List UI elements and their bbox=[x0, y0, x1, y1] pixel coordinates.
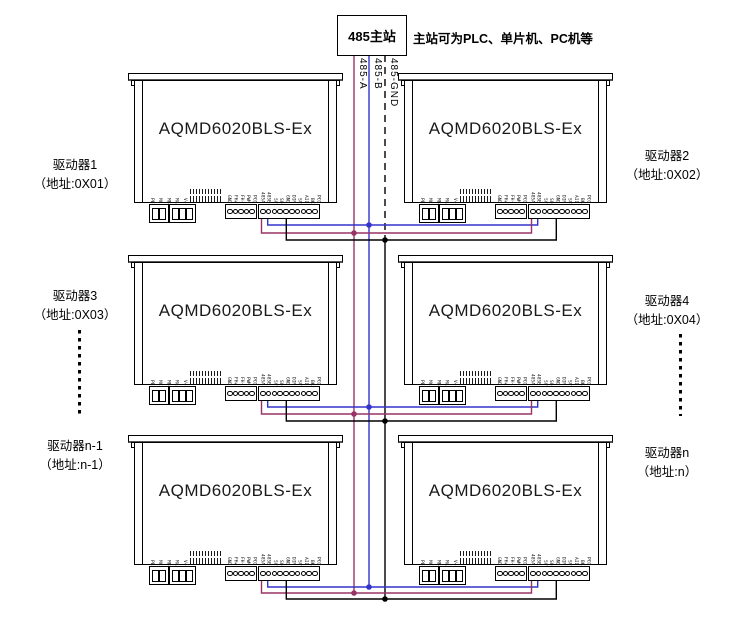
signal-terminal bbox=[272, 391, 278, 397]
signal-terminal bbox=[289, 209, 295, 215]
signal-terminal bbox=[312, 209, 318, 215]
pin-label: SV bbox=[297, 380, 302, 385]
signal-terminal bbox=[283, 391, 289, 397]
pin-label: GND bbox=[496, 377, 501, 385]
pin-label: MC bbox=[157, 198, 162, 203]
power-terminal bbox=[152, 390, 159, 402]
pin-label: MC bbox=[157, 560, 162, 565]
power-terminal bbox=[159, 208, 166, 220]
junction-dot bbox=[382, 237, 388, 243]
pin-label: PWM bbox=[245, 377, 250, 385]
pin-label: PCO bbox=[315, 557, 320, 565]
junction-dot bbox=[366, 584, 372, 590]
pin-label: 485B bbox=[536, 192, 541, 203]
driver-name: 驱动器n-1 bbox=[10, 437, 140, 456]
driver-address: （地址:0X04） bbox=[602, 311, 732, 330]
signal-terminal bbox=[227, 571, 233, 577]
pin-label: BK bbox=[309, 380, 314, 385]
driver-address: （地址:n） bbox=[602, 463, 732, 482]
power-terminal bbox=[179, 390, 186, 402]
driver-label: 驱动器2（地址:0X02） bbox=[602, 147, 732, 185]
power-terminal bbox=[456, 208, 463, 220]
pin-label: BK bbox=[579, 560, 584, 565]
pin-label: GND bbox=[496, 557, 501, 565]
pin-label: FH- bbox=[509, 377, 514, 385]
terminal-block-signal-5 bbox=[495, 386, 527, 401]
pin-label: V+ bbox=[182, 560, 187, 565]
pin-label: FH+ bbox=[232, 557, 237, 565]
pin-label: AI1 bbox=[573, 195, 578, 203]
master-note: 主站可为PLC、单片机、PC机等 bbox=[413, 28, 593, 47]
pin-label: MB bbox=[165, 198, 170, 203]
pin-label: PCO bbox=[315, 195, 320, 203]
pin-label: PE bbox=[419, 380, 424, 385]
terminal-block-power-b bbox=[169, 566, 196, 585]
signal-terminal bbox=[238, 571, 244, 577]
terminal-block-power-b bbox=[439, 204, 466, 223]
signal-terminal bbox=[547, 391, 553, 397]
pin-label: FH+ bbox=[502, 377, 507, 385]
pin-label: AI1 bbox=[573, 377, 578, 385]
signal-terminal bbox=[576, 571, 582, 577]
terminal-block-power-b bbox=[439, 386, 466, 405]
signal-terminal bbox=[260, 571, 266, 577]
pin-label: PWM bbox=[245, 195, 250, 203]
ellipsis-marker-left bbox=[78, 330, 81, 415]
power-terminal bbox=[442, 390, 449, 402]
bus-label-485-b: 485-B bbox=[372, 58, 383, 90]
signal-terminal bbox=[553, 571, 559, 577]
signal-terminal bbox=[312, 571, 318, 577]
pin-label: V+ bbox=[452, 560, 457, 565]
driver-unit: AQMD6020BLS-ExPEMCMBMAV+GNDFH+FH-PWMPCO4… bbox=[398, 435, 615, 586]
terminal-block-signal-10 bbox=[528, 566, 590, 581]
pin-label: DIR bbox=[561, 557, 566, 565]
driver-side-rail-right bbox=[328, 80, 337, 203]
signal-terminal bbox=[519, 571, 525, 577]
wiring-diagram: 485主站 主站可为PLC、单片机、PC机等 485-A 485-B 485-G… bbox=[0, 0, 750, 617]
signal-terminal bbox=[277, 209, 283, 215]
signal-terminal bbox=[508, 391, 514, 397]
signal-terminal bbox=[553, 391, 559, 397]
pin-label: 485A bbox=[260, 374, 265, 385]
driver-name: 驱动器2 bbox=[602, 147, 732, 166]
pin-label: PE bbox=[419, 198, 424, 203]
pin-label: SV bbox=[567, 380, 572, 385]
junction-dot bbox=[366, 222, 372, 228]
pin-label: 485A bbox=[530, 192, 535, 203]
signal-terminal bbox=[301, 571, 307, 577]
driver-side-rail-right bbox=[328, 442, 337, 565]
power-terminal bbox=[179, 208, 186, 220]
model-label: AQMD6020BLS-Ex bbox=[142, 301, 329, 321]
driver-name: 驱动器n bbox=[602, 444, 732, 463]
pin-label: FH- bbox=[509, 195, 514, 203]
model-label: AQMD6020BLS-Ex bbox=[412, 119, 599, 139]
power-terminal bbox=[442, 570, 449, 582]
pin-label: V+ bbox=[182, 198, 187, 203]
spec-text-block bbox=[190, 551, 223, 564]
signal-terminal bbox=[559, 571, 565, 577]
pin-label: 485B bbox=[266, 192, 271, 203]
pin-label: V+ bbox=[452, 380, 457, 385]
pin-label: SQ bbox=[548, 198, 553, 203]
pin-label: FH+ bbox=[232, 377, 237, 385]
terminal-block-power-a bbox=[149, 204, 169, 223]
signal-terminal bbox=[227, 391, 233, 397]
pin-label: PCO bbox=[585, 195, 590, 203]
signal-terminal bbox=[249, 209, 255, 215]
driver-label: 驱动器n-1（地址:n-1） bbox=[10, 437, 140, 475]
pin-label: AI1 bbox=[303, 377, 308, 385]
driver-address: （地址:0X01） bbox=[10, 175, 140, 194]
signal-terminal bbox=[295, 391, 301, 397]
power-terminal bbox=[422, 570, 429, 582]
driver-unit: AQMD6020BLS-ExPEMCMBMAV+GNDFH+FH-PWMPCO4… bbox=[128, 255, 345, 406]
signal-terminal bbox=[559, 391, 565, 397]
spec-text-block bbox=[460, 551, 493, 564]
pin-label: DIR bbox=[561, 195, 566, 203]
power-terminal bbox=[172, 570, 179, 582]
signal-terminal bbox=[542, 209, 548, 215]
signal-terminal bbox=[582, 391, 588, 397]
signal-terminal bbox=[295, 571, 301, 577]
pin-label: FH- bbox=[239, 377, 244, 385]
model-label: AQMD6020BLS-Ex bbox=[142, 481, 329, 501]
pin-label: 5V bbox=[542, 198, 547, 203]
pin-label: MC bbox=[157, 380, 162, 385]
power-terminal bbox=[152, 208, 159, 220]
terminal-block-signal-10 bbox=[258, 204, 320, 219]
signal-terminal bbox=[260, 209, 266, 215]
power-terminal bbox=[186, 390, 193, 402]
driver-body bbox=[142, 262, 329, 385]
terminal-block-power-a bbox=[149, 566, 169, 585]
spec-text-block bbox=[460, 189, 493, 202]
signal-terminal bbox=[266, 391, 272, 397]
pin-label: SV bbox=[567, 560, 572, 565]
pin-label: MC bbox=[427, 198, 432, 203]
signal-terminal bbox=[272, 571, 278, 577]
pin-label: DIR bbox=[291, 195, 296, 203]
power-terminal bbox=[172, 208, 179, 220]
model-label: AQMD6020BLS-Ex bbox=[412, 301, 599, 321]
pin-label: SQ bbox=[548, 560, 553, 565]
spec-text-block bbox=[190, 189, 223, 202]
signal-terminal bbox=[289, 571, 295, 577]
signal-terminal bbox=[497, 571, 503, 577]
pin-label: FH- bbox=[239, 557, 244, 565]
pin-label: V+ bbox=[182, 380, 187, 385]
pin-label: GND bbox=[496, 195, 501, 203]
terminal-block-signal-5 bbox=[495, 204, 527, 219]
master-station-label: 485主站 bbox=[348, 26, 396, 45]
pin-label: MB bbox=[435, 380, 440, 385]
terminal-block-signal-10 bbox=[258, 566, 320, 581]
signal-terminal bbox=[306, 209, 312, 215]
junction-dot bbox=[351, 411, 357, 417]
pin-label: 5V bbox=[542, 560, 547, 565]
power-terminal bbox=[159, 390, 166, 402]
pin-label: SQ bbox=[548, 380, 553, 385]
terminal-block-signal-10 bbox=[258, 386, 320, 401]
power-terminal bbox=[429, 570, 436, 582]
pin-label: PE bbox=[149, 560, 154, 565]
signal-terminal bbox=[571, 571, 577, 577]
pin-label: GND bbox=[554, 557, 559, 565]
pin-label: PCO bbox=[252, 195, 257, 203]
power-terminal bbox=[449, 208, 456, 220]
power-terminal bbox=[422, 390, 429, 402]
signal-terminal bbox=[576, 209, 582, 215]
signal-terminal bbox=[266, 209, 272, 215]
pin-label: MA bbox=[174, 560, 179, 565]
pin-label: MC bbox=[427, 380, 432, 385]
driver-address: （地址:0X03） bbox=[10, 306, 140, 325]
pin-label: PWM bbox=[515, 377, 520, 385]
signal-terminal bbox=[260, 391, 266, 397]
pin-label: MB bbox=[165, 560, 170, 565]
signal-terminal bbox=[536, 571, 542, 577]
pin-label: DIR bbox=[291, 377, 296, 385]
pin-label: FH- bbox=[509, 557, 514, 565]
pin-label: 485B bbox=[266, 374, 271, 385]
signal-terminal bbox=[277, 391, 283, 397]
ellipsis-marker-right bbox=[679, 334, 682, 416]
pin-label: 485A bbox=[260, 554, 265, 565]
signal-terminal bbox=[582, 209, 588, 215]
terminal-block-signal-10 bbox=[528, 386, 590, 401]
signal-terminal bbox=[283, 571, 289, 577]
power-terminal bbox=[449, 570, 456, 582]
driver-body bbox=[142, 80, 329, 203]
pin-label: AI1 bbox=[303, 557, 308, 565]
pin-label: PE bbox=[149, 380, 154, 385]
signal-terminal bbox=[306, 391, 312, 397]
power-terminal bbox=[186, 208, 193, 220]
terminal-block-signal-5 bbox=[495, 566, 527, 581]
pin-label: AI1 bbox=[303, 195, 308, 203]
pin-label: PCO bbox=[315, 377, 320, 385]
signal-terminal bbox=[249, 571, 255, 577]
signal-terminal bbox=[238, 391, 244, 397]
signal-terminal bbox=[277, 571, 283, 577]
pin-label: PWM bbox=[515, 557, 520, 565]
pin-label: BK bbox=[309, 560, 314, 565]
signal-terminal bbox=[497, 391, 503, 397]
driver-label: 驱动器1（地址:0X01） bbox=[10, 156, 140, 194]
pin-label: MB bbox=[435, 560, 440, 565]
pin-label: MA bbox=[174, 380, 179, 385]
bus-label-485-gnd: 485-GND bbox=[388, 58, 399, 107]
driver-label: 驱动器4（地址:0X04） bbox=[602, 292, 732, 330]
pin-label: PCO bbox=[522, 377, 527, 385]
signal-terminal bbox=[553, 209, 559, 215]
master-station-box: 485主站 bbox=[337, 15, 407, 56]
pin-label: 5V bbox=[272, 198, 277, 203]
pin-label: DIR bbox=[291, 557, 296, 565]
signal-terminal bbox=[547, 209, 553, 215]
pin-label: BK bbox=[579, 380, 584, 385]
pin-label: MA bbox=[444, 380, 449, 385]
driver-name: 驱动器1 bbox=[10, 156, 140, 175]
signal-terminal bbox=[576, 391, 582, 397]
driver-unit: AQMD6020BLS-ExPEMCMBMAV+GNDFH+FH-PWMPCO4… bbox=[398, 73, 615, 224]
signal-terminal bbox=[582, 571, 588, 577]
signal-terminal bbox=[249, 391, 255, 397]
driver-body bbox=[412, 80, 599, 203]
power-terminal bbox=[429, 208, 436, 220]
terminal-block-signal-5 bbox=[225, 204, 257, 219]
pin-label: 485B bbox=[266, 554, 271, 565]
pin-label: PWM bbox=[245, 557, 250, 565]
driver-address: （地址:0X02） bbox=[602, 166, 732, 185]
signal-terminal bbox=[227, 209, 233, 215]
pin-label: FH+ bbox=[502, 195, 507, 203]
power-terminal bbox=[159, 570, 166, 582]
signal-terminal bbox=[272, 209, 278, 215]
signal-terminal bbox=[519, 209, 525, 215]
pin-label: PCO bbox=[522, 195, 527, 203]
signal-terminal bbox=[565, 209, 571, 215]
signal-terminal bbox=[530, 571, 536, 577]
pin-label: V+ bbox=[452, 198, 457, 203]
spec-text-block bbox=[190, 371, 223, 384]
pin-label: GND bbox=[284, 377, 289, 385]
signal-terminal bbox=[306, 571, 312, 577]
bus-label-485-a: 485-A bbox=[357, 58, 368, 90]
driver-side-rail-right bbox=[328, 262, 337, 385]
pin-label: SV bbox=[297, 198, 302, 203]
pin-label: 485A bbox=[530, 554, 535, 565]
signal-terminal bbox=[571, 209, 577, 215]
pin-label: PCO bbox=[585, 377, 590, 385]
power-terminal bbox=[186, 570, 193, 582]
signal-terminal bbox=[542, 391, 548, 397]
signal-terminal bbox=[508, 209, 514, 215]
driver-name: 驱动器4 bbox=[602, 292, 732, 311]
signal-terminal bbox=[519, 391, 525, 397]
pin-label: GND bbox=[554, 377, 559, 385]
terminal-block-power-a bbox=[419, 566, 439, 585]
pin-label: GND bbox=[226, 195, 231, 203]
driver-label: 驱动器n（地址:n） bbox=[602, 444, 732, 482]
driver-body bbox=[142, 442, 329, 565]
terminal-block-signal-5 bbox=[225, 566, 257, 581]
signal-terminal bbox=[530, 209, 536, 215]
pin-label: 5V bbox=[272, 380, 277, 385]
pin-label: MA bbox=[174, 198, 179, 203]
pin-label: GND bbox=[284, 195, 289, 203]
pin-label: DIR bbox=[561, 377, 566, 385]
pin-label: GND bbox=[554, 195, 559, 203]
model-label: AQMD6020BLS-Ex bbox=[142, 119, 329, 139]
pin-label: 485A bbox=[260, 192, 265, 203]
terminal-block-signal-5 bbox=[225, 386, 257, 401]
power-terminal bbox=[152, 570, 159, 582]
pin-label: PE bbox=[149, 198, 154, 203]
pin-label: MA bbox=[444, 560, 449, 565]
signal-terminal bbox=[565, 571, 571, 577]
signal-terminal bbox=[536, 209, 542, 215]
pin-label: FH+ bbox=[502, 557, 507, 565]
junction-dot bbox=[382, 418, 388, 424]
pin-label: GND bbox=[284, 557, 289, 565]
power-terminal bbox=[449, 390, 456, 402]
power-terminal bbox=[456, 390, 463, 402]
pin-label: BK bbox=[309, 198, 314, 203]
driver-name: 驱动器3 bbox=[10, 287, 140, 306]
pin-label: GND bbox=[226, 557, 231, 565]
terminal-block-signal-10 bbox=[528, 204, 590, 219]
pin-label: GND bbox=[226, 377, 231, 385]
junction-dot bbox=[351, 590, 357, 596]
terminal-block-power-a bbox=[419, 386, 439, 405]
pin-label: PE bbox=[419, 560, 424, 565]
pin-label: FH+ bbox=[232, 195, 237, 203]
junction-dot bbox=[382, 596, 388, 602]
power-terminal bbox=[456, 570, 463, 582]
junction-dot bbox=[366, 404, 372, 410]
power-terminal bbox=[179, 570, 186, 582]
driver-body bbox=[412, 262, 599, 385]
signal-terminal bbox=[536, 391, 542, 397]
terminal-block-power-a bbox=[419, 204, 439, 223]
power-terminal bbox=[429, 390, 436, 402]
pin-label: PCO bbox=[252, 377, 257, 385]
pin-label: 485B bbox=[536, 554, 541, 565]
pin-label: SQ bbox=[278, 198, 283, 203]
pin-label: SV bbox=[567, 198, 572, 203]
power-terminal bbox=[172, 390, 179, 402]
signal-terminal bbox=[283, 209, 289, 215]
pin-label: PCO bbox=[585, 557, 590, 565]
pin-label: SQ bbox=[278, 380, 283, 385]
power-terminal bbox=[442, 208, 449, 220]
model-label: AQMD6020BLS-Ex bbox=[412, 481, 599, 501]
terminal-block-power-b bbox=[169, 204, 196, 223]
driver-body bbox=[412, 442, 599, 565]
pin-label: PWM bbox=[515, 195, 520, 203]
pin-label: 485B bbox=[536, 374, 541, 385]
signal-terminal bbox=[547, 571, 553, 577]
power-terminal bbox=[422, 208, 429, 220]
driver-unit: AQMD6020BLS-ExPEMCMBMAV+GNDFH+FH-PWMPCO4… bbox=[128, 435, 345, 586]
terminal-block-power-a bbox=[149, 386, 169, 405]
signal-terminal bbox=[565, 391, 571, 397]
signal-terminal bbox=[301, 209, 307, 215]
junction-dot bbox=[351, 230, 357, 236]
driver-address: （地址:n-1） bbox=[10, 456, 140, 475]
pin-label: BK bbox=[579, 198, 584, 203]
signal-terminal bbox=[542, 571, 548, 577]
terminal-block-power-b bbox=[169, 386, 196, 405]
signal-terminal bbox=[295, 209, 301, 215]
signal-terminal bbox=[301, 391, 307, 397]
driver-unit: AQMD6020BLS-ExPEMCMBMAV+GNDFH+FH-PWMPCO4… bbox=[128, 73, 345, 224]
pin-label: MB bbox=[165, 380, 170, 385]
signal-terminal bbox=[497, 209, 503, 215]
signal-terminal bbox=[238, 209, 244, 215]
signal-terminal bbox=[559, 209, 565, 215]
signal-terminal bbox=[266, 571, 272, 577]
pin-label: SQ bbox=[278, 560, 283, 565]
signal-terminal bbox=[289, 391, 295, 397]
driver-label: 驱动器3（地址:0X03） bbox=[10, 287, 140, 325]
driver-unit: AQMD6020BLS-ExPEMCMBMAV+GNDFH+FH-PWMPCO4… bbox=[398, 255, 615, 406]
pin-label: PCO bbox=[252, 557, 257, 565]
pin-label: SV bbox=[297, 560, 302, 565]
